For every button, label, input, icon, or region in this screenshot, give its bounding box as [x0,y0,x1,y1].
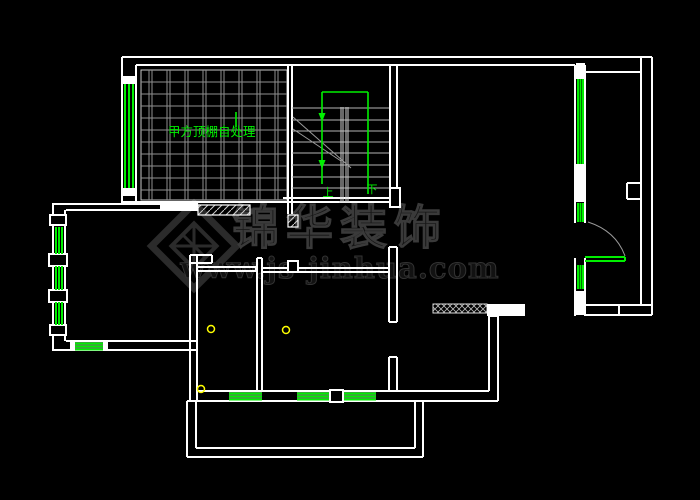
window-bigroom-middle [578,203,583,222]
window-bigroom-lower [578,265,583,289]
wall-segment-bottom [487,304,525,316]
window-pier-2 [49,290,67,302]
window-pier-bottom [330,390,343,402]
wall-marker-box [288,261,298,272]
hatch-strip-left [198,205,250,215]
column-hatched [288,215,298,227]
floor-plan-canvas: 锦华装饰 www.js-jinhua.com 甲方顶棚自处理 [0,0,700,500]
window-pier-1 [49,254,67,266]
skylight-note-text: 甲方顶棚自处理 [168,124,256,139]
stair-down-label: 下 [367,183,378,196]
watermark-brand: 锦华装饰 [232,201,448,256]
window-bigroom-upper [578,79,583,164]
stair-wall-pier [390,188,400,207]
stair-up-label: 上 [323,186,334,199]
hatch-strip-bottom [433,304,487,313]
